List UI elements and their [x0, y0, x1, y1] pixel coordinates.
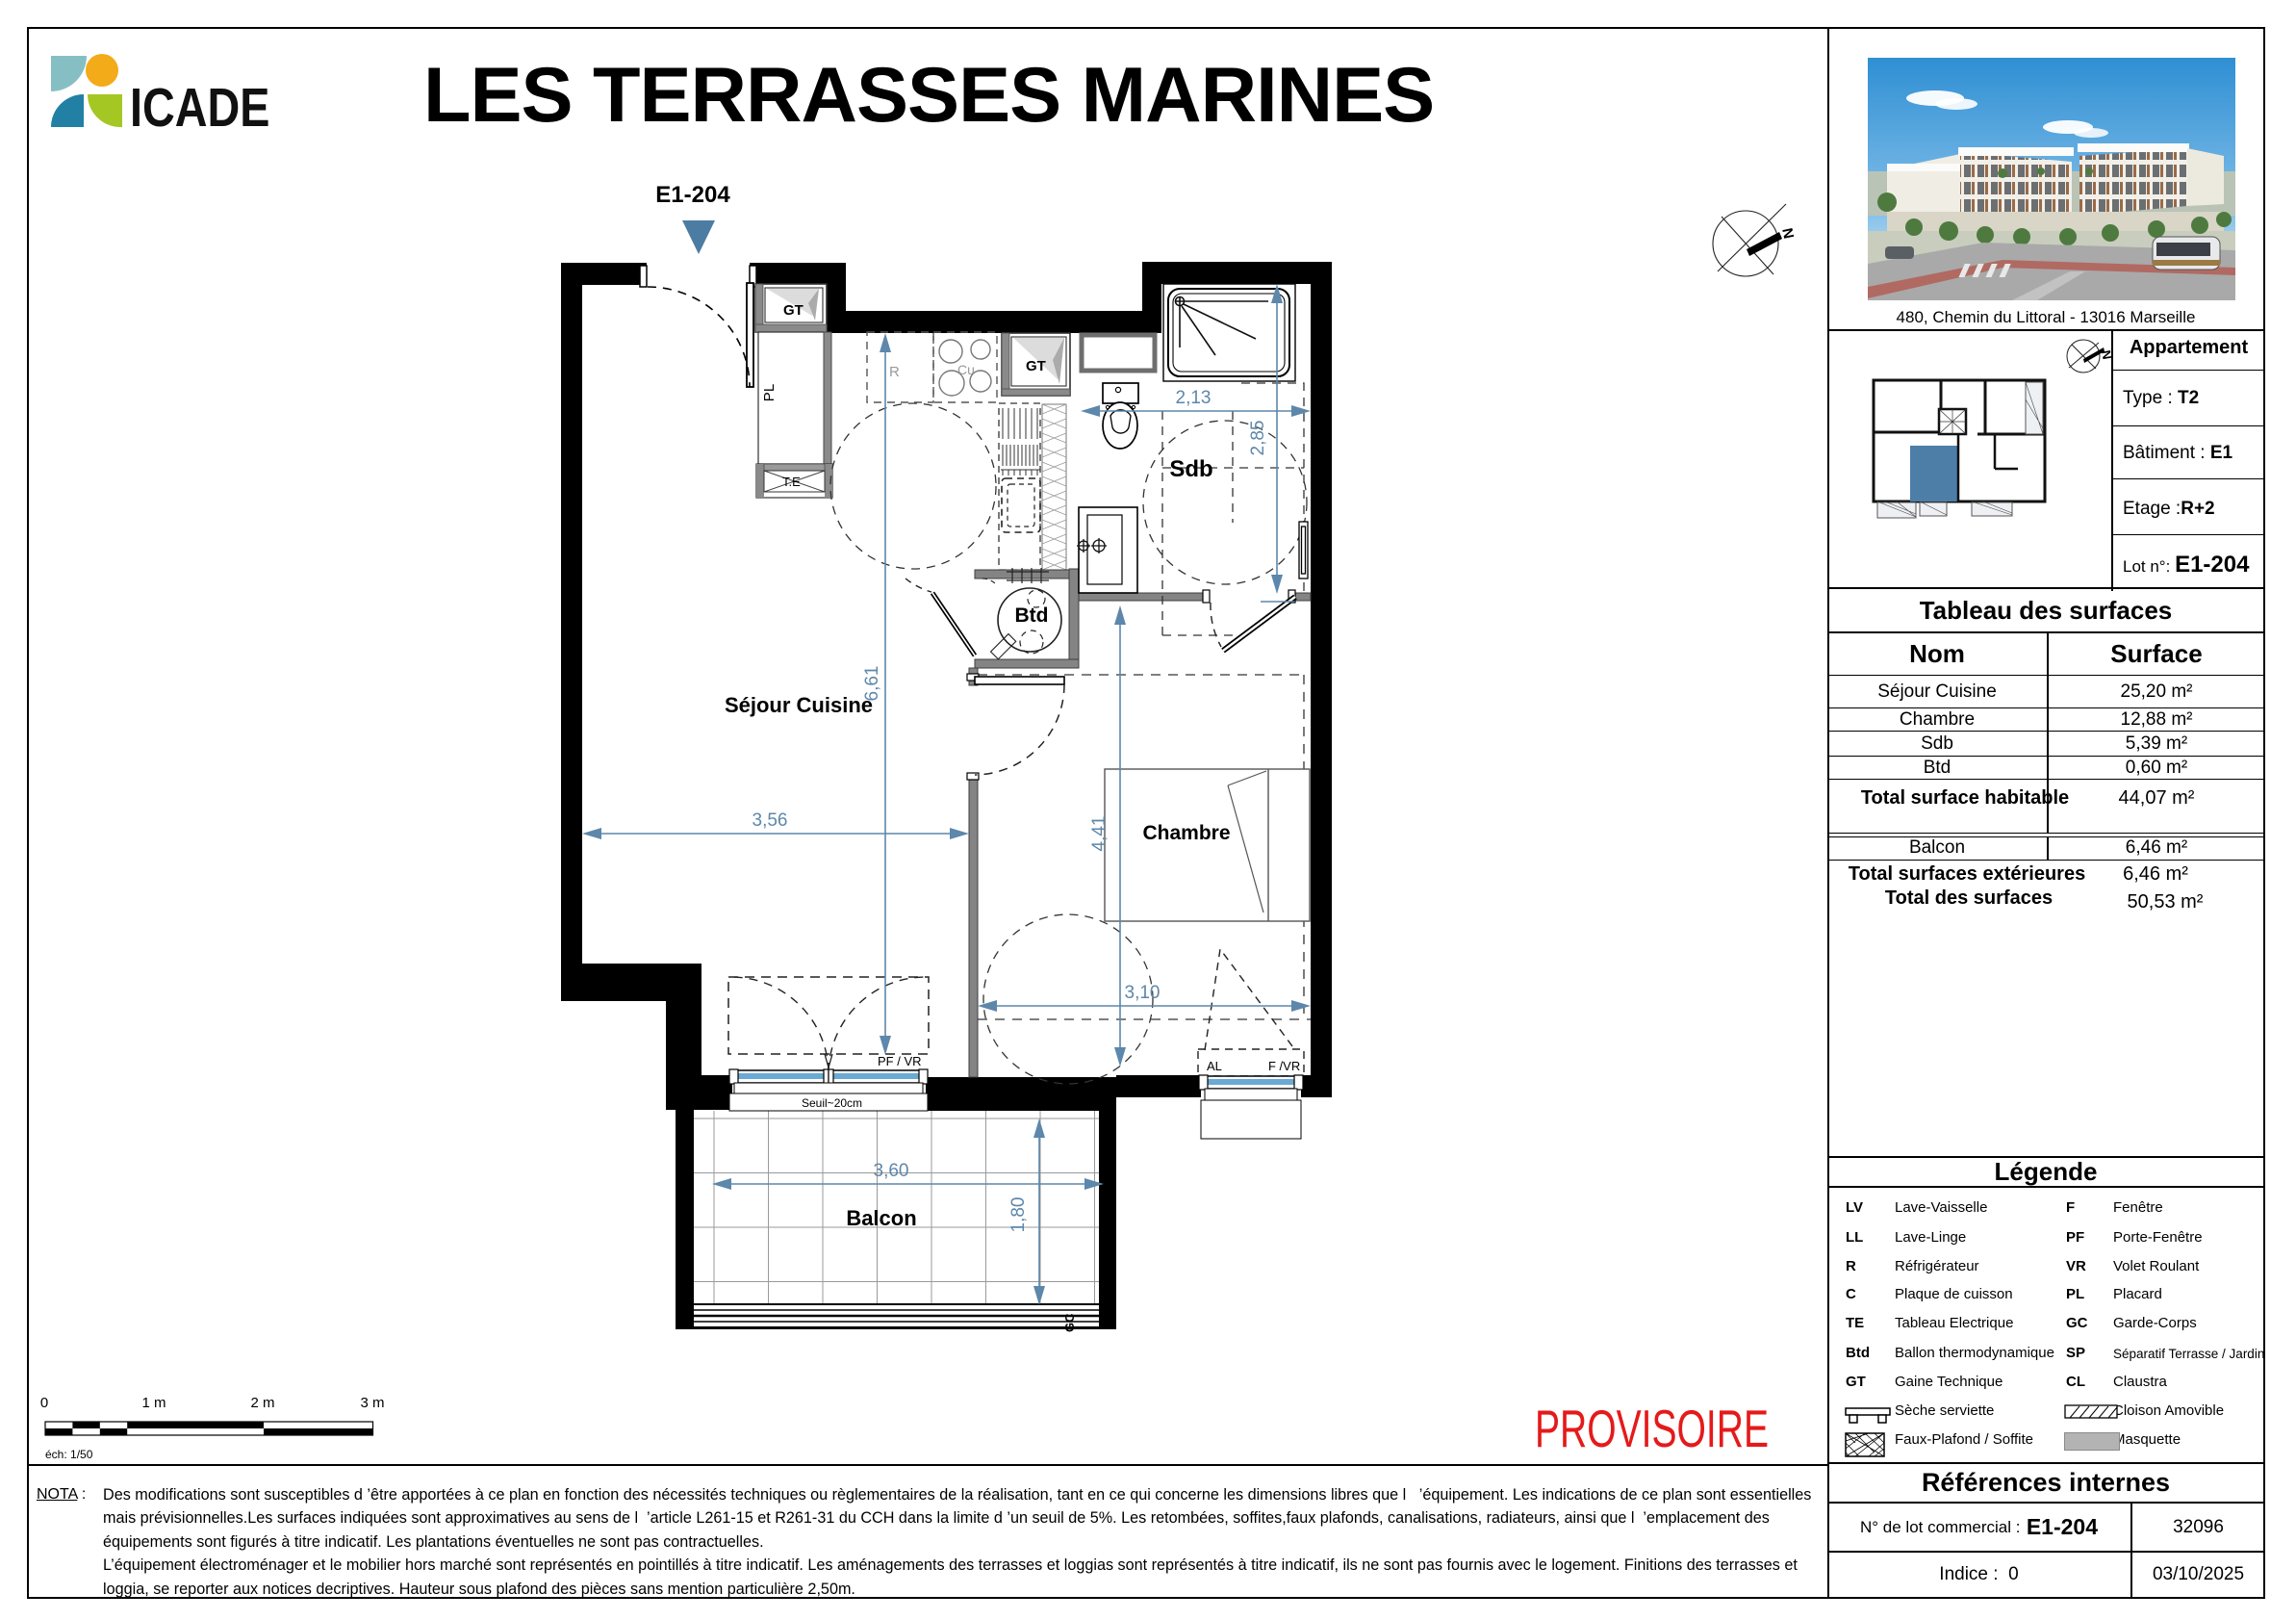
svg-text:2 m: 2 m: [250, 1395, 274, 1411]
svg-text:Balcon: Balcon: [846, 1206, 916, 1230]
svg-text:1 m: 1 m: [141, 1395, 166, 1411]
svg-text:Chambre: Chambre: [1142, 822, 1230, 844]
svg-text:3,60: 3,60: [874, 1161, 909, 1181]
svg-text:PF / VR: PF / VR: [878, 1054, 922, 1068]
svg-text:T.E: T.E: [782, 475, 801, 489]
svg-text:Cu: Cu: [957, 362, 975, 377]
svg-text:GC: GC: [1062, 1313, 1077, 1332]
svg-text:éch: 1/50: éch: 1/50: [45, 1448, 93, 1461]
svg-text:2,85: 2,85: [1248, 421, 1268, 456]
svg-text:F /VR: F /VR: [1268, 1059, 1300, 1073]
svg-text:2,13: 2,13: [1176, 388, 1212, 408]
svg-text:R: R: [889, 364, 900, 380]
svg-text:4,41: 4,41: [1089, 816, 1110, 852]
svg-text:0: 0: [40, 1395, 48, 1411]
svg-text:Séjour Cuisine: Séjour Cuisine: [725, 693, 873, 717]
svg-text:GT: GT: [783, 302, 804, 319]
svg-text:Sdb: Sdb: [1169, 456, 1212, 482]
svg-text:Btd: Btd: [1015, 604, 1049, 627]
svg-text:PL: PL: [761, 384, 778, 401]
svg-text:GT: GT: [1026, 358, 1046, 374]
svg-text:3,56: 3,56: [753, 810, 788, 831]
svg-text:6,61: 6,61: [862, 666, 882, 702]
svg-text:1,80: 1,80: [1008, 1197, 1029, 1233]
svg-text:3,10: 3,10: [1125, 983, 1161, 1003]
svg-text:N: N: [1778, 226, 1797, 240]
svg-text:Seuil~20cm: Seuil~20cm: [802, 1096, 862, 1110]
svg-text:3 m: 3 m: [360, 1395, 384, 1411]
svg-text:AL: AL: [1207, 1059, 1222, 1073]
